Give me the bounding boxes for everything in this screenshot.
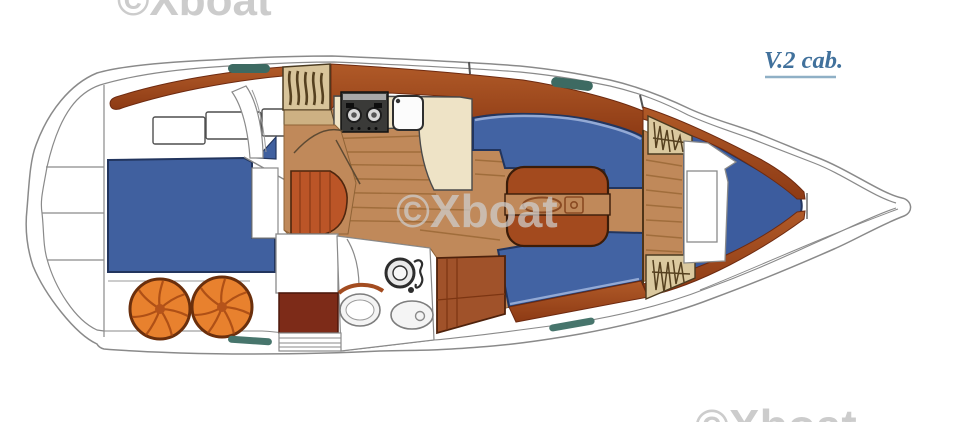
svg-text:V.2 cab.: V.2 cab. [764, 47, 843, 74]
svg-text:©Xboat: ©Xboat [117, 0, 272, 25]
svg-text:©Xboat: ©Xboat [396, 185, 558, 237]
svg-text:©Xboat: ©Xboat [695, 400, 857, 422]
